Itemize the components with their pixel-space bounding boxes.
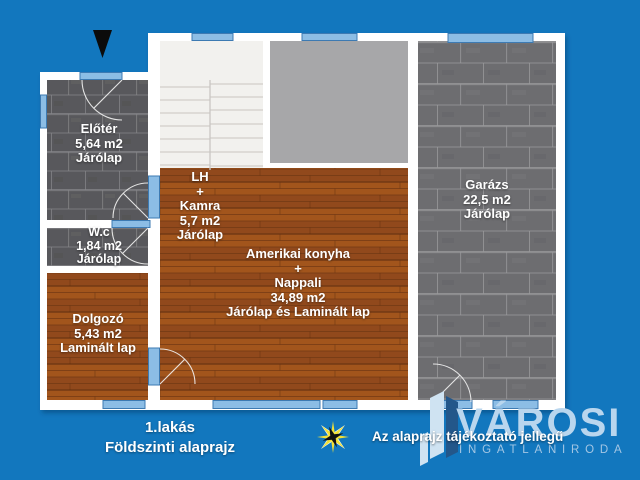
room-area: 5,43 m2 <box>60 327 136 342</box>
staircase-floor <box>160 41 263 168</box>
room-area: 34,89 m2 <box>226 291 370 306</box>
eloter-window <box>41 95 47 128</box>
room-name: LH <box>177 170 223 185</box>
compass-star-icon <box>317 421 349 453</box>
entrance-door-opening <box>80 73 122 80</box>
room-plus: + <box>177 185 223 200</box>
room-plus: + <box>226 262 370 277</box>
brand-subtitle: INGATLANIRODA <box>459 444 627 456</box>
room-name: Kamra <box>177 199 223 214</box>
room-name: Dolgozó <box>60 312 136 327</box>
room-name: W.c <box>76 226 122 240</box>
room-wc-label: W.c 1,84 m2 Járólap <box>76 226 122 267</box>
room-name: Előtér <box>75 122 123 137</box>
room-area: 22,5 m2 <box>463 193 511 208</box>
room-name: Amerikai konyha <box>226 247 370 262</box>
room-name: Nappali <box>226 276 370 291</box>
room-floor: Járólap <box>463 207 511 222</box>
room-area: 5,64 m2 <box>75 137 123 152</box>
room-floor: Járólap <box>75 151 123 166</box>
nappali-window-b <box>323 401 357 409</box>
room-area: 1,84 m2 <box>76 240 122 254</box>
landing-window <box>302 34 357 41</box>
room-floor: Járólap és Laminált lap <box>226 305 370 320</box>
room-dolgozo-label: Dolgozó 5,43 m2 Laminált lap <box>60 312 136 356</box>
unit-label: 1.lakás <box>105 418 235 438</box>
landing-area <box>270 41 408 163</box>
stairs-window <box>192 34 233 41</box>
eloter-hall-door-opening <box>149 176 160 218</box>
room-floor: Járólap <box>76 253 122 267</box>
room-eloter-label: Előtér 5,64 m2 Járólap <box>75 122 123 166</box>
room-name: Garázs <box>463 178 511 193</box>
dolgozo-window <box>103 401 145 409</box>
room-floor: Laminált lap <box>60 341 136 356</box>
room-nappali-label: Amerikai konyha + Nappali 34,89 m2 Járól… <box>226 247 370 320</box>
north-arrow-icon <box>93 30 112 58</box>
room-lh-kamra-label: LH + Kamra 5,7 m2 Járólap <box>177 170 223 243</box>
room-area: 5,7 m2 <box>177 214 223 229</box>
room-garazs-label: Garázs 22,5 m2 Járólap <box>463 178 511 222</box>
room-floor: Járólap <box>177 228 223 243</box>
plan-title: 1.lakás Földszinti alaprajz <box>105 418 235 458</box>
garage-door-opening <box>448 34 533 43</box>
dolgozo-door-opening <box>149 348 160 385</box>
disclaimer-text: Az alaprajz tájékoztató jellegű <box>372 429 563 444</box>
nappali-window-a <box>213 401 320 409</box>
floor-label: Földszinti alaprajz <box>105 438 235 458</box>
floor-plan-image: Előtér 5,64 m2 Járólap W.c 1,84 m2 Járól… <box>0 0 640 480</box>
